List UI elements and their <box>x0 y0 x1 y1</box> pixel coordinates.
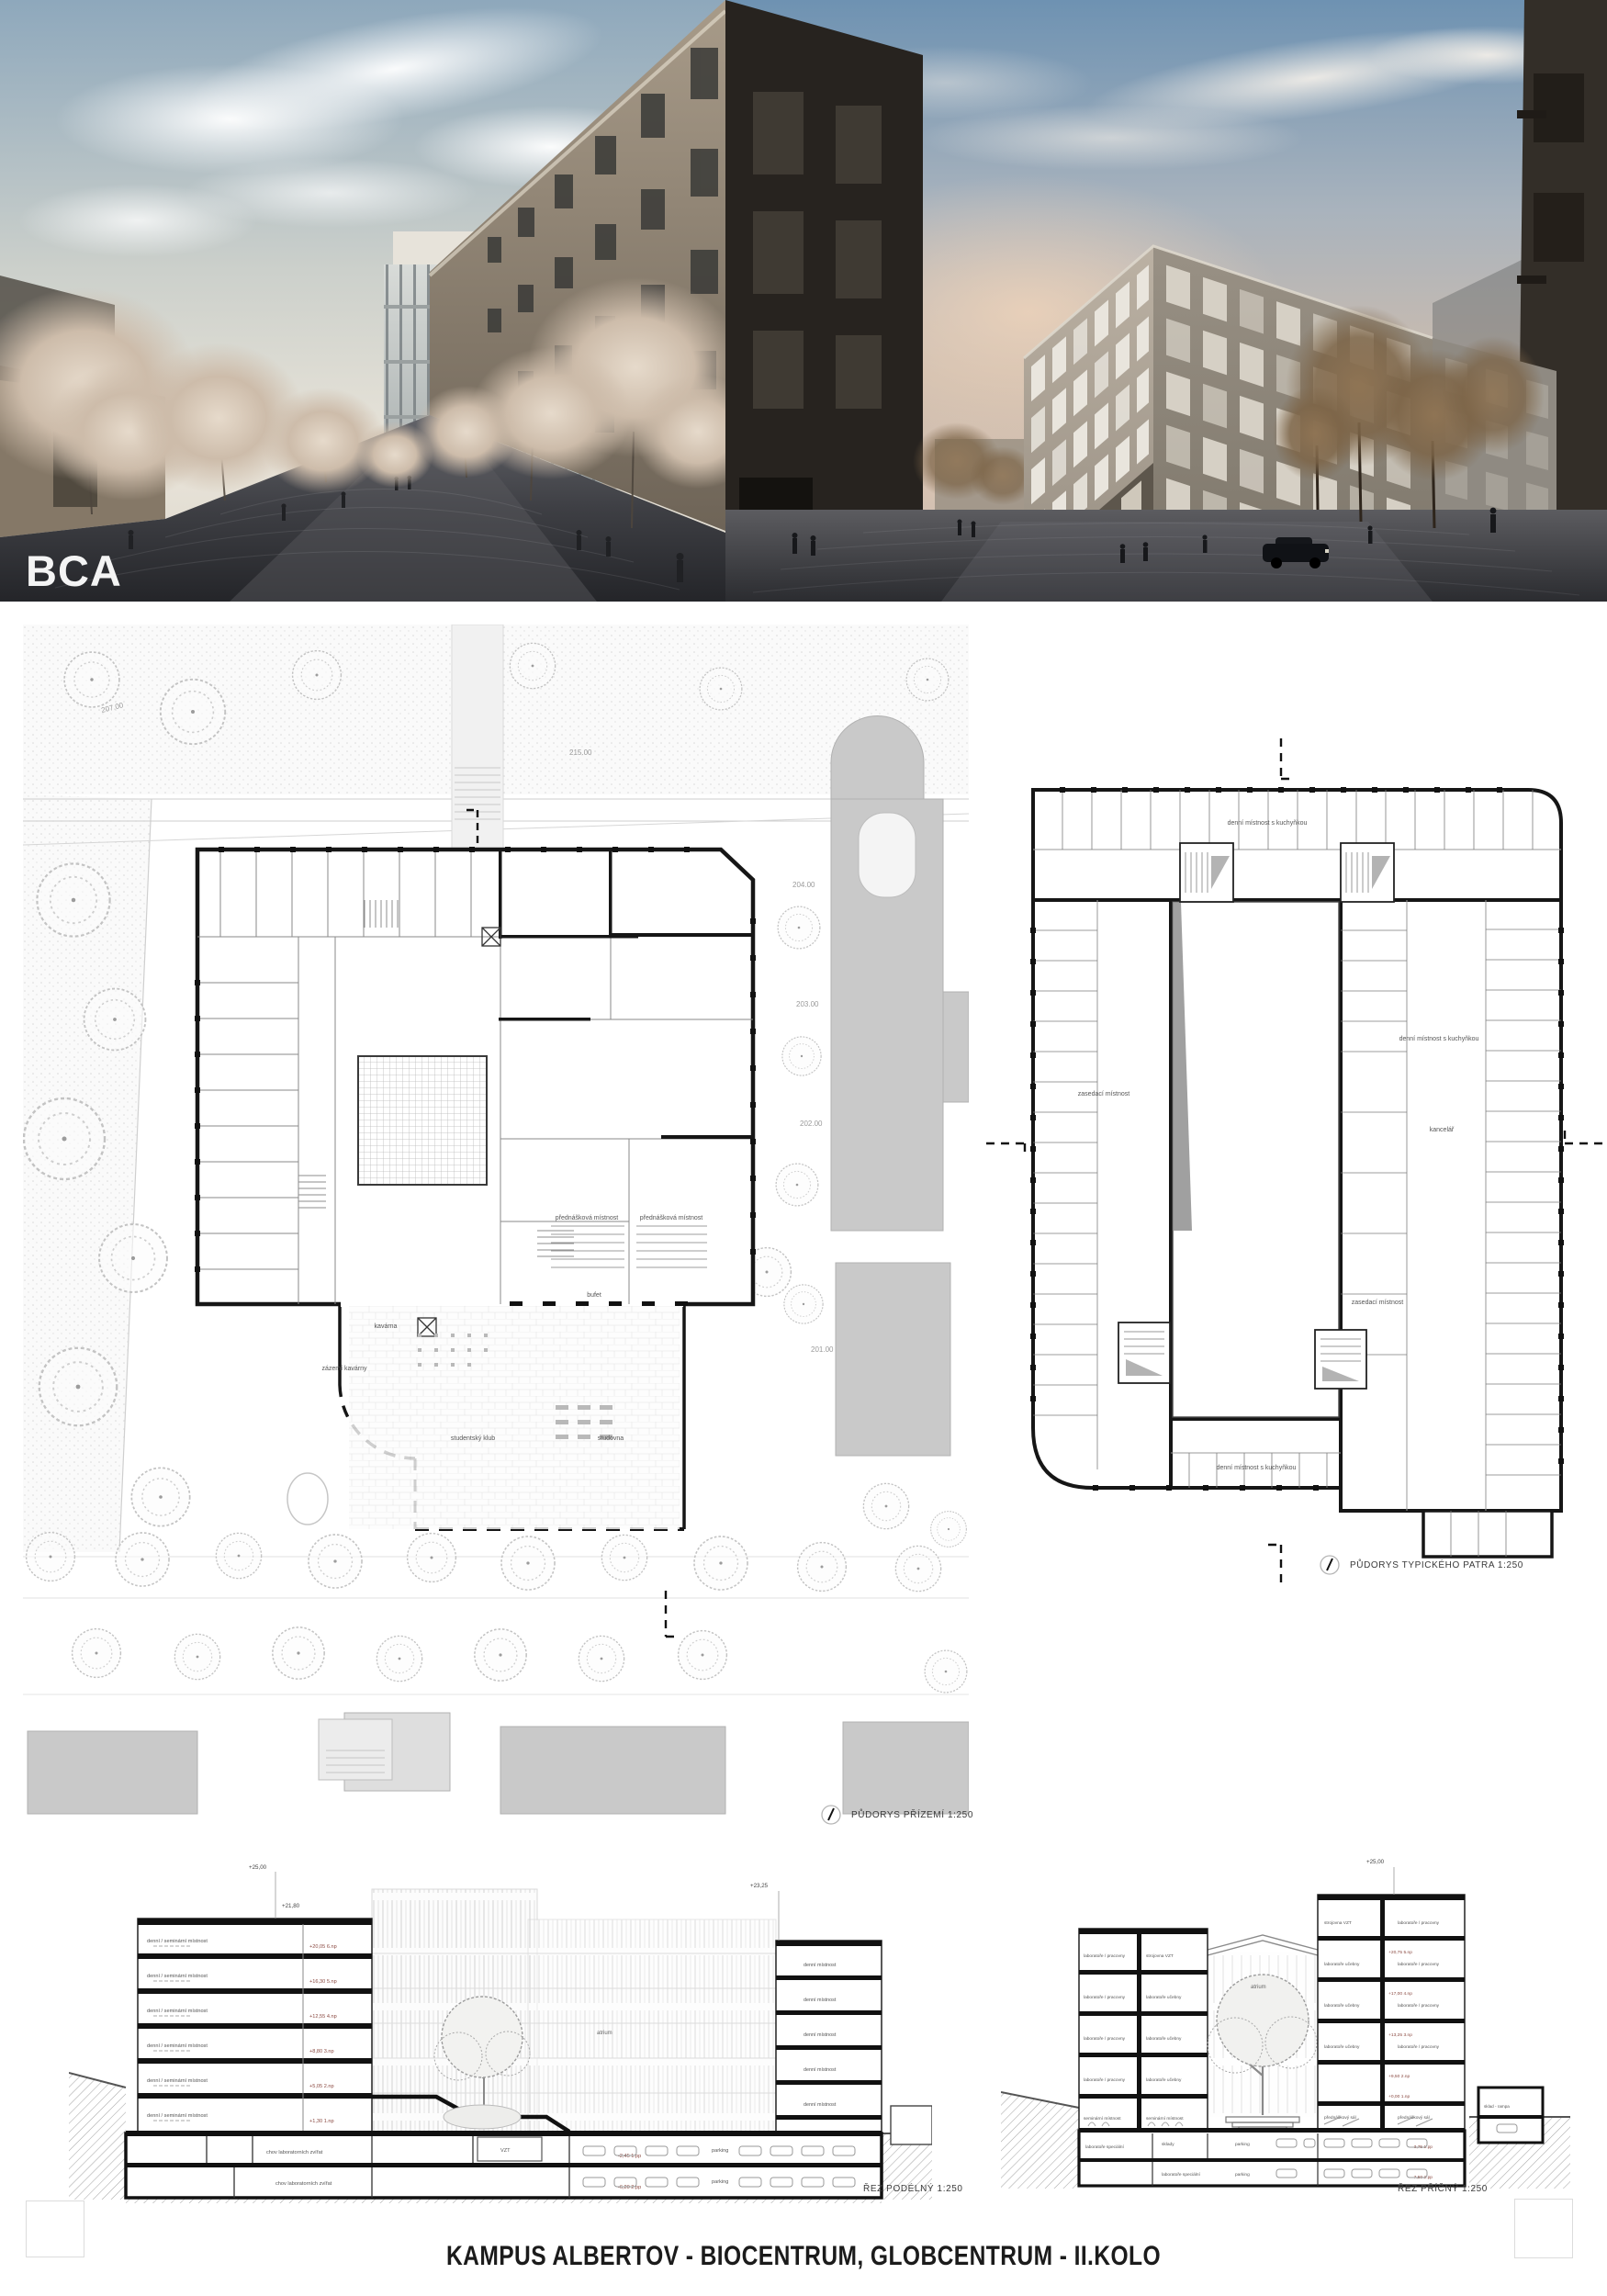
room-label: denní / seminární místnost <box>147 1939 208 1944</box>
room-label: denní místnost <box>803 2032 837 2038</box>
board-title-row: KAMPUS ALBERTOV - BIOCENTRUM, GLOBCENTRU… <box>0 2241 1607 2272</box>
room-label: chov laboratorních zvířat <box>275 2181 332 2187</box>
room-label: strojovna VZT <box>1146 1953 1174 1959</box>
room-label: zasedací místnost <box>1078 1091 1129 1097</box>
room-label: denní místnost s kuchyňkou <box>1228 820 1308 827</box>
section-marker <box>666 1591 679 1637</box>
board-title: KAMPUS ALBERTOV - BIOCENTRUM, GLOBCENTRU… <box>145 2241 1463 2272</box>
basement: laboratoře speciální sklady parking labo… <box>1079 2128 1465 2186</box>
room-label: denní místnost <box>803 2102 837 2108</box>
north-arrow-icon <box>820 1804 842 1826</box>
room-label: parking <box>1235 2172 1250 2178</box>
level-label: +16,30 5.np <box>309 1979 337 1985</box>
typical-floor-plan-drawing: denní místnost s kuchyňkou zasedací míst… <box>983 735 1607 1589</box>
room-label: přednáškový sál <box>1324 2115 1356 2121</box>
room-label: denní / seminární místnost <box>147 1974 208 1979</box>
level-label: +20,75 5.np <box>1388 1950 1412 1955</box>
cross-section-caption-text: ŘEZ PŘÍČNÝ 1:250 <box>1398 2184 1488 2194</box>
level-label: +9,50 2.np <box>1388 2074 1410 2079</box>
room-label: denní / seminární místnost <box>147 2078 208 2084</box>
room-label: laboratoře speciální <box>1162 2172 1201 2178</box>
room-label: zasedací místnost <box>1352 1300 1403 1306</box>
room-label: laboratoře / pracovny <box>1398 2003 1440 2009</box>
room-label: denní / seminární místnost <box>147 2043 208 2049</box>
room-label: atrium <box>597 2031 612 2036</box>
longitudinal-section: denní / seminární místnost denní / semin… <box>69 1841 932 2204</box>
room-label: přednášková místnost <box>556 1215 619 1221</box>
typical-plan-caption: PŮDORYS TYPICKÉHO PATRA 1:250 <box>1319 1554 1523 1576</box>
right-wing: strojovna VZT laboratoře / pracovny labo… <box>1318 1859 1465 2131</box>
competition-board: BCA <box>0 0 1607 2296</box>
room-label: laboratoře učebny <box>1146 2036 1182 2042</box>
ground-floor-plan: 207.00 215.00 204.00 203.00 202.00 201.0… <box>23 625 969 1837</box>
cross-section-drawing: laboratoře / pracovny strojovna VZT labo… <box>1001 1841 1570 2195</box>
level-label: +25,00 <box>249 1864 267 1871</box>
render-street-view-image <box>0 0 725 602</box>
room-label: sklad - rampa <box>1484 2104 1510 2109</box>
room-label: denní místnost s kuchyňkou <box>1399 1036 1479 1042</box>
ground-floor-plan-drawing: 207.00 215.00 204.00 203.00 202.00 201.0… <box>23 625 969 1837</box>
north-arrow-icon <box>1319 1554 1341 1576</box>
level-label: +0,00 1.np <box>1388 2094 1410 2099</box>
render-street-view: BCA <box>0 0 725 602</box>
room-label: studentský klub <box>451 1435 495 1442</box>
room-label: laboratoře / pracovny <box>1084 1953 1126 1959</box>
room-label: strojovna VZT <box>1324 1920 1352 1926</box>
level-label: -2,45 1.pp <box>618 2154 641 2159</box>
room-label: bufet <box>587 1292 601 1299</box>
contour-label: 203.00 <box>796 1000 819 1008</box>
longitudinal-section-drawing: denní / seminární místnost denní / semin… <box>69 1841 932 2204</box>
contour-label: 215.00 <box>569 748 592 757</box>
team-mark: BCA <box>26 549 122 592</box>
level-label: +5,05 2.np <box>309 2084 334 2089</box>
room-label: laboratoře učebny <box>1324 2003 1360 2009</box>
cross-section: laboratoře / pracovny strojovna VZT labo… <box>1001 1841 1570 2195</box>
room-label: laboratoře speciální <box>1085 2144 1125 2150</box>
room-label: laboratoře / pracovny <box>1084 1995 1126 2000</box>
room-label: chov laboratorních zvířat <box>266 2150 323 2155</box>
courtyard <box>1173 902 1339 1417</box>
level-label: -6,20 2.pp <box>618 2185 641 2190</box>
render-corner-view-image <box>725 0 1607 602</box>
ground-plan-caption: PŮDORYS PŘÍZEMÍ 1:250 <box>820 1804 973 1826</box>
top-level-annotations: +25,00 +21,80 <box>249 1864 300 1919</box>
level-label: +13,25 3.np <box>1388 2032 1412 2038</box>
room-label: denní místnost <box>803 1998 837 2003</box>
room-label: denní / seminární místnost <box>147 2113 208 2119</box>
room-label: denní místnost <box>803 1963 837 1968</box>
level-label: +25,00 <box>1366 1859 1385 1865</box>
room-label: sklady <box>1162 2142 1174 2147</box>
room-label: denní místnost <box>803 2067 837 2073</box>
room-label: laboratoře / pracovny <box>1398 1962 1440 1967</box>
contour-label: 201.00 <box>811 1345 834 1354</box>
longitudinal-section-caption: ŘEZ PODÉLNÝ 1:250 <box>863 2184 963 2194</box>
ring-building: denní místnost s kuchyňkou zasedací míst… <box>1030 787 1564 1557</box>
plaza-cobbles <box>725 510 1607 602</box>
room-label: denní / seminární místnost <box>147 2009 208 2014</box>
room-label: studovna <box>598 1435 624 1442</box>
typical-plan-caption-text: PŮDORYS TYPICKÉHO PATRA 1:250 <box>1350 1560 1523 1570</box>
level-label: +8,80 3.np <box>309 2049 334 2054</box>
street-tree-row-1 <box>27 1533 941 1592</box>
cross-section-caption: ŘEZ PŘÍČNÝ 1:250 <box>1398 2184 1488 2194</box>
room-label: laboratoře učebny <box>1146 1995 1182 2000</box>
room-label: laboratoře / pracovny <box>1398 2044 1440 2050</box>
room-label: laboratoře / pracovny <box>1398 1920 1440 1926</box>
basement: chov laboratorních zvířat chov laborator… <box>126 2131 882 2198</box>
room-label: atrium <box>1251 1985 1266 1990</box>
room-label: parking <box>712 2148 728 2154</box>
room-label: kancelář <box>1430 1127 1455 1133</box>
street-tree-row-2 <box>73 1627 967 1693</box>
room-label: parking <box>712 2179 728 2185</box>
room-label: seminární místnost <box>1084 2116 1121 2122</box>
left-wing: laboratoře / pracovny strojovna VZT labo… <box>1079 1929 1208 2131</box>
contour-label: 204.00 <box>792 881 815 889</box>
level-label: +20,05 6.np <box>309 1944 337 1950</box>
level-label: +1,30 1.np <box>309 2119 334 2124</box>
render-corner-view <box>725 0 1607 602</box>
room-label: VZT <box>500 2148 511 2154</box>
level-label: +12,55 4.np <box>309 2014 337 2020</box>
room-label: denní místnost s kuchyňkou <box>1217 1465 1297 1471</box>
atrium <box>358 1056 487 1185</box>
longitudinal-section-caption-text: ŘEZ PODÉLNÝ 1:250 <box>863 2184 963 2194</box>
right-block: denní místnost denní místnost denní míst… <box>750 1883 932 2144</box>
annex-box <box>891 2106 932 2144</box>
level-label: +17,00 4.np <box>1388 1991 1412 1997</box>
room-label: přednášková místnost <box>640 1215 703 1221</box>
detached-storage-box: sklad - rampa <box>1478 2088 1543 2143</box>
room-label: laboratoře učebny <box>1324 1962 1360 1967</box>
room-label: laboratoře / pracovny <box>1084 2036 1126 2042</box>
driveway-loop <box>287 1473 328 1525</box>
typical-floor-plan: denní místnost s kuchyňkou zasedací míst… <box>983 735 1607 1589</box>
room-label: parking <box>1235 2142 1250 2147</box>
room-label: zázemí kavárny <box>321 1366 367 1372</box>
room-label: laboratoře učebny <box>1146 2077 1182 2083</box>
level-label: +21,80 <box>282 1903 300 1909</box>
level-label: +23,25 <box>750 1883 769 1889</box>
room-label: přednáškový sál <box>1398 2115 1430 2121</box>
room-label: kavárna <box>375 1323 398 1330</box>
room-label: laboratoře učebny <box>1324 2044 1360 2050</box>
contour-label: 202.00 <box>800 1120 823 1128</box>
room-label: seminární místnost <box>1146 2116 1184 2122</box>
ground-plan-caption-text: PŮDORYS PŘÍZEMÍ 1:250 <box>851 1810 973 1820</box>
room-label: laboratoře / pracovny <box>1084 2077 1126 2083</box>
proposed-building: přednášková místnost přednášková místnos… <box>195 847 756 1637</box>
